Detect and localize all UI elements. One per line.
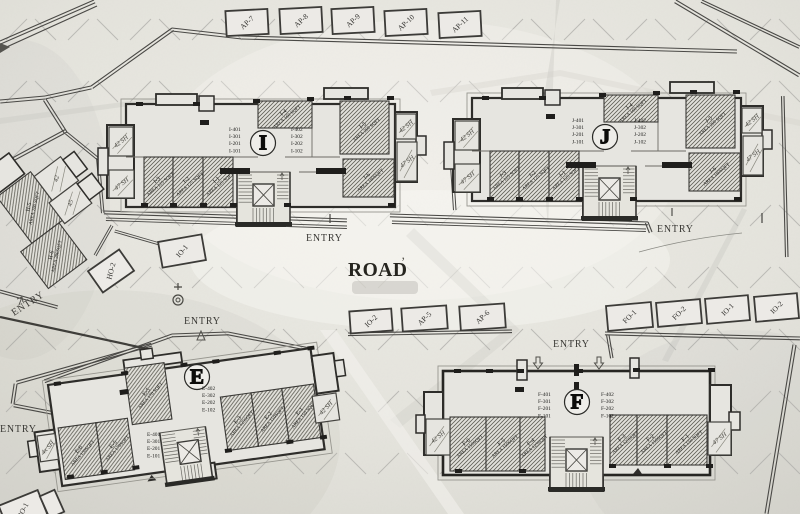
svg-text:ENTRY: ENTRY bbox=[184, 316, 221, 327]
svg-text:J-401J-301J-201J-101: J-401J-301J-201J-101 bbox=[572, 118, 584, 145]
svg-text:I-401I-301I-201I-101: I-401I-301I-201I-101 bbox=[229, 127, 241, 154]
svg-text:ENTRY: ENTRY bbox=[657, 224, 694, 235]
svg-text:F-401F-301F-201F-101: F-401F-301F-201F-101 bbox=[538, 392, 551, 419]
svg-text:E-402E-302E-202E-102: E-402E-302E-202E-102 bbox=[202, 386, 215, 413]
svg-text:ENTRY: ENTRY bbox=[553, 339, 590, 350]
svg-text:’: ’ bbox=[401, 254, 405, 269]
svg-text:E: E bbox=[190, 365, 204, 389]
svg-text:E-401E-301E-201E-101: E-401E-301E-201E-101 bbox=[147, 432, 160, 459]
svg-text:I: I bbox=[259, 131, 267, 155]
svg-text:ENTRY: ENTRY bbox=[0, 424, 37, 435]
svg-text:J: J bbox=[600, 125, 611, 149]
svg-text:F: F bbox=[571, 390, 584, 414]
svg-text:I-402I-302I-202I-102: I-402I-302I-202I-102 bbox=[291, 127, 303, 154]
svg-text:F-402F-302F-202F-102: F-402F-302F-202F-102 bbox=[601, 392, 614, 419]
svg-text:J-402J-302J-202J-102: J-402J-302J-202J-102 bbox=[634, 118, 646, 145]
svg-text:ENTRY: ENTRY bbox=[306, 233, 343, 244]
svg-text:ROAD: ROAD bbox=[348, 260, 407, 281]
